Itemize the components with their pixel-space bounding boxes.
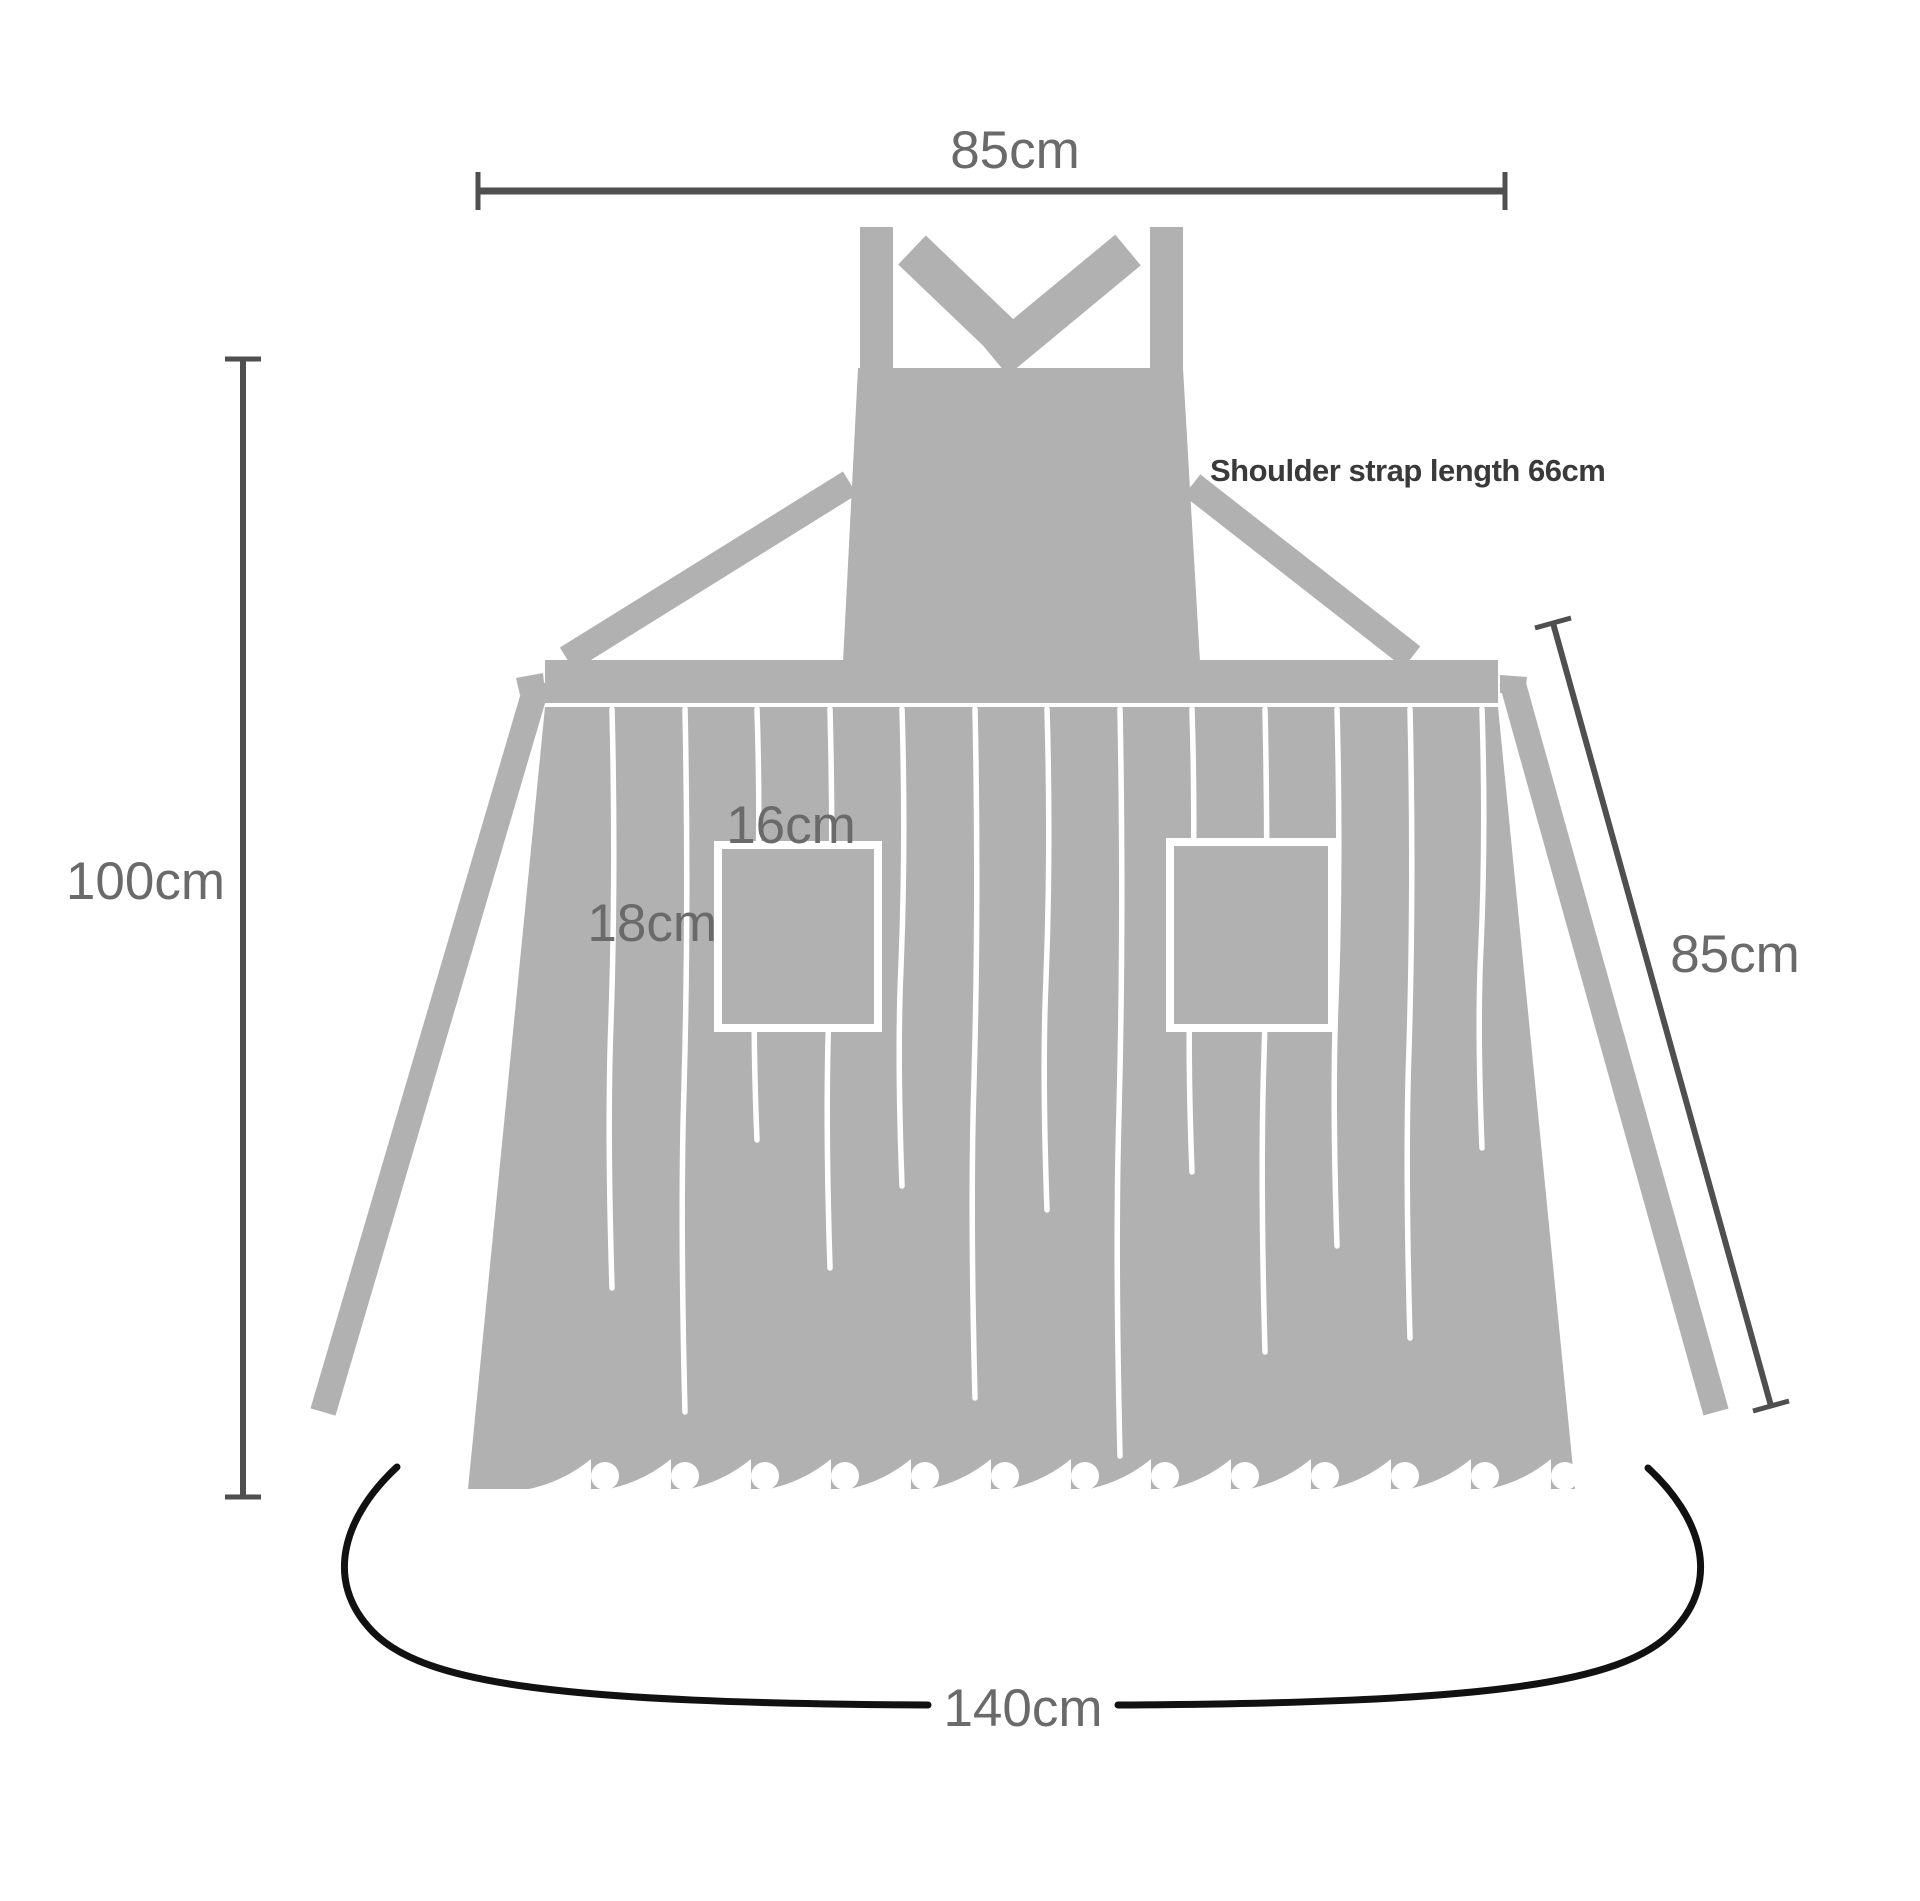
pocket-height-label: 18cm [587,894,717,953]
wave-curl-cutout [1551,1462,1579,1490]
left-pocket [718,845,878,1028]
bib-panel [843,368,1200,662]
wave-curl-cutout [1071,1462,1099,1490]
right-side-strap [1192,485,1412,657]
cross-strap-right-icon [995,250,1128,360]
pocket-width-label: 16cm [726,796,856,855]
waistband [545,660,1498,703]
bottom-width-curve-right [1118,1468,1701,1705]
apron-shape [323,227,1716,1489]
wave-curl-cutout [1231,1462,1259,1490]
height-label: 100cm [66,852,225,911]
wave-curl-cutout [671,1462,699,1490]
left-side-strap [567,483,850,659]
side-length-label: 85cm [1670,925,1800,984]
wave-curl-cutout [1391,1462,1419,1490]
bottom-width-curve-left [344,1467,928,1705]
wave-curl-cutout [1311,1462,1339,1490]
top-width-label: 85cm [950,121,1080,180]
shoulder-strap-label: Shoulder strap length 66cm [1210,453,1605,488]
apron-diagram-canvas: 85cm 100cm Shoulder strap length 66cm 16… [0,0,1920,1901]
wave-curl-cutout [1471,1462,1499,1490]
apron-dimension-diagram: 85cm 100cm Shoulder strap length 66cm 16… [0,0,1920,1901]
wave-curl-cutout [1151,1462,1179,1490]
wave-curl-cutout [911,1462,939,1490]
wave-curl-cutout [831,1462,859,1490]
right-pocket [1170,842,1332,1028]
left-shoulder-strap [860,227,893,370]
wave-curl-cutout [991,1462,1019,1490]
wave-curl-cutout [591,1462,619,1490]
wave-curl-cutout [751,1462,779,1490]
side-length-dimension-line [1553,623,1771,1406]
bottom-width-label: 140cm [943,1679,1102,1738]
right-shoulder-strap [1150,227,1183,370]
